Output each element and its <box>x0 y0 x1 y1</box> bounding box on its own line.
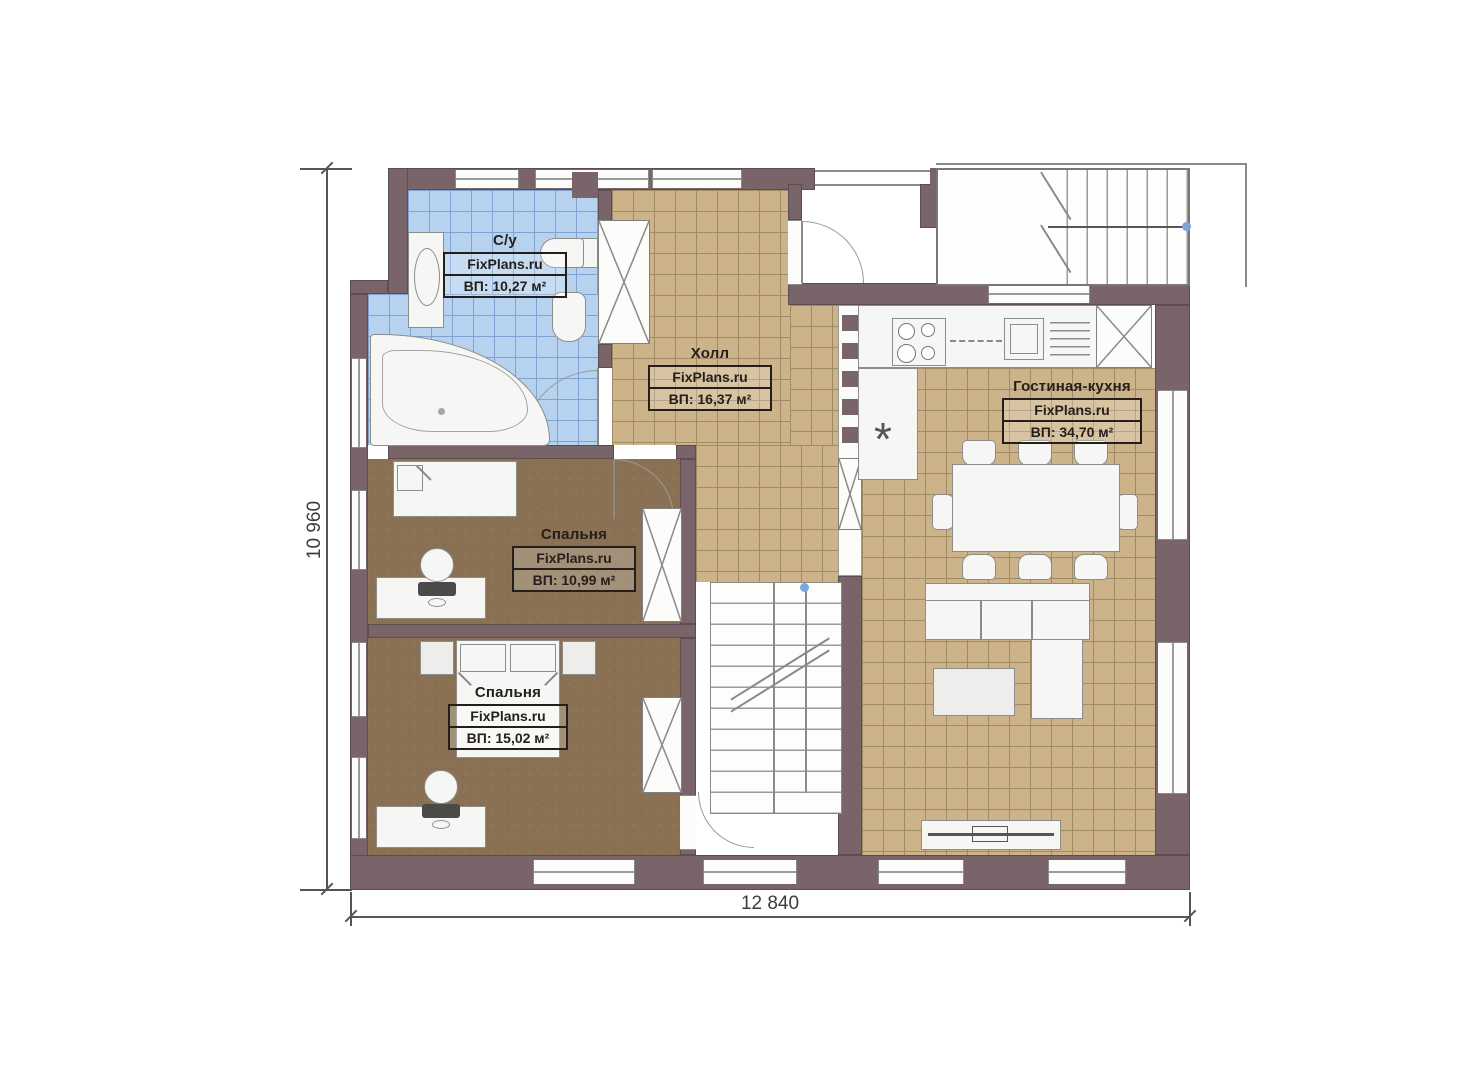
room-name: Гостиная-кухня <box>1002 378 1142 395</box>
room-label-bathroom: С/у FixPlans.ru ВП: 10,27 м² <box>443 232 567 298</box>
window-bottom-4 <box>1048 860 1126 884</box>
chair-bedroom1-seat <box>420 548 454 582</box>
dining-chair <box>962 554 996 580</box>
stove-burner <box>921 346 935 360</box>
chair-bedroom2-base <box>432 820 450 829</box>
staircase-start-node <box>800 583 809 592</box>
room-area: ВП: 16,37 м² <box>650 389 770 409</box>
wall-left-jog <box>350 280 388 294</box>
wall-bath-east-b <box>598 344 612 368</box>
vestibule-glazing-top <box>815 170 935 172</box>
window-bottom-1 <box>533 860 635 884</box>
bed-double-pillow-left <box>460 644 506 672</box>
dimension-ext-bottom-b <box>1189 892 1191 926</box>
sink-drainboard <box>1050 322 1090 356</box>
counter-dashed-line <box>950 340 1002 342</box>
sofa-back <box>925 583 1090 601</box>
wall-left-upper <box>388 168 408 294</box>
sink-basin <box>414 248 440 306</box>
room-label-bedroom1: Спальня FixPlans.ru ВП: 10,99 м² <box>512 526 636 592</box>
dining-table <box>952 464 1120 552</box>
porch-handrail <box>1048 226 1188 228</box>
door-gap-vestibule <box>788 220 802 285</box>
staircase-guide-line <box>805 588 807 793</box>
floor-plan: * С/у <box>0 0 1473 1080</box>
sofa-chaise <box>1031 639 1083 719</box>
kitchen-sink-basin <box>1010 324 1038 354</box>
dining-chair <box>1018 554 1052 580</box>
window-kitchen-north <box>988 285 1090 303</box>
window-top-3 <box>652 170 742 188</box>
window-top-1 <box>455 170 519 188</box>
room-info-box: FixPlans.ru ВП: 34,70 м² <box>1002 398 1142 444</box>
refrigerator-symbol: * <box>874 424 892 454</box>
room-name: С/у <box>443 232 567 249</box>
staircase-divider <box>773 582 775 814</box>
duct-block-3 <box>842 371 858 387</box>
window-left-4 <box>352 757 366 839</box>
dimension-width-label: 12 840 <box>700 893 840 915</box>
chair-bedroom2-back <box>422 804 460 818</box>
porch-handrail-node <box>1182 222 1191 231</box>
vestibule-glazing-bottom <box>815 184 935 186</box>
chair-bedroom1-base <box>428 598 446 607</box>
door-swing-vestibule <box>802 221 864 283</box>
room-label-hall: Холл FixPlans.ru ВП: 16,37 м² <box>648 345 772 411</box>
sofa-seat-split-1 <box>980 600 982 640</box>
sofa-seat <box>925 600 1090 640</box>
bathtub-drain <box>438 408 445 415</box>
room-brand: FixPlans.ru <box>1004 400 1140 422</box>
room-area: ВП: 34,70 м² <box>1004 422 1140 442</box>
wall-bedrooms-divider <box>368 624 696 638</box>
wall-bedroom1-east <box>680 459 696 624</box>
tv-body <box>972 826 1008 842</box>
wardrobe-bedroom2 <box>642 697 682 793</box>
shaft-bath-hall <box>598 220 650 344</box>
room-info-box: FixPlans.ru ВП: 10,27 м² <box>443 252 567 298</box>
room-info-box: FixPlans.ru ВП: 10,99 м² <box>512 546 636 592</box>
hall-floor-east <box>790 305 838 445</box>
door-leaf-bedroom1 <box>613 459 615 519</box>
door-gap-bedroom2 <box>680 795 696 850</box>
room-info-box: FixPlans.ru ВП: 16,37 м² <box>648 365 772 411</box>
room-brand: FixPlans.ru <box>450 706 566 728</box>
shaft-entry <box>1096 305 1152 368</box>
door-leaf-vestibule <box>801 221 803 283</box>
window-right-2 <box>1158 642 1187 794</box>
room-area: ВП: 10,27 м² <box>445 276 565 296</box>
room-name: Холл <box>648 345 772 362</box>
window-left-1 <box>352 358 366 448</box>
dimension-line-horizontal <box>350 916 1190 918</box>
room-area: ВП: 15,02 м² <box>450 728 566 748</box>
chair-bedroom1-back <box>418 582 456 596</box>
bidet <box>552 292 586 342</box>
room-brand: FixPlans.ru <box>445 254 565 276</box>
room-brand: FixPlans.ru <box>514 548 634 570</box>
nightstand-left <box>420 641 454 675</box>
chimney-flue <box>572 172 598 198</box>
dimension-ext-bottom-a <box>350 892 352 926</box>
wall-bedroom1-north-b <box>676 445 696 459</box>
room-info-box: FixPlans.ru ВП: 15,02 м² <box>448 704 568 750</box>
room-area: ВП: 10,99 м² <box>514 570 634 590</box>
dimension-line-vertical <box>326 168 328 890</box>
stove-burner <box>921 323 935 337</box>
terrace-edge-right <box>1245 163 1247 287</box>
sofa-seat-split-2 <box>1031 600 1033 640</box>
window-right-1 <box>1158 390 1187 540</box>
duct-block-4 <box>842 399 858 415</box>
wall-vestibule-left <box>788 184 802 220</box>
bed-double-pillow-right <box>510 644 556 672</box>
wall-bedroom1-north <box>388 445 614 459</box>
wardrobe-bedroom1 <box>642 508 682 622</box>
coffee-table <box>933 668 1015 716</box>
duct-block-1 <box>842 315 858 331</box>
room-brand: FixPlans.ru <box>650 367 770 389</box>
dimension-height-label: 10 960 <box>304 475 326 585</box>
window-bottom-2 <box>703 860 797 884</box>
window-bottom-3 <box>878 860 964 884</box>
chair-bedroom2-seat <box>424 770 458 804</box>
hall-floor-south <box>696 445 838 582</box>
stove-burner <box>897 344 916 363</box>
terrace-edge-top <box>936 163 1246 165</box>
room-name: Спальня <box>448 684 568 701</box>
room-name: Спальня <box>512 526 636 543</box>
room-label-living-kitchen: Гостиная-кухня FixPlans.ru ВП: 34,70 м² <box>1002 378 1142 444</box>
duct-block-2 <box>842 343 858 359</box>
window-left-2 <box>352 490 366 570</box>
room-label-bedroom2: Спальня FixPlans.ru ВП: 15,02 м² <box>448 684 568 750</box>
nightstand-right <box>562 641 596 675</box>
dining-chair <box>1074 554 1108 580</box>
wall-bath-east-a <box>598 190 612 224</box>
toilet-tank <box>582 238 598 268</box>
window-left-3 <box>352 642 366 717</box>
stove-burner <box>898 323 915 340</box>
door-leaf-bathroom <box>597 368 599 446</box>
dining-chair <box>962 440 996 466</box>
duct-block-5 <box>842 427 858 443</box>
